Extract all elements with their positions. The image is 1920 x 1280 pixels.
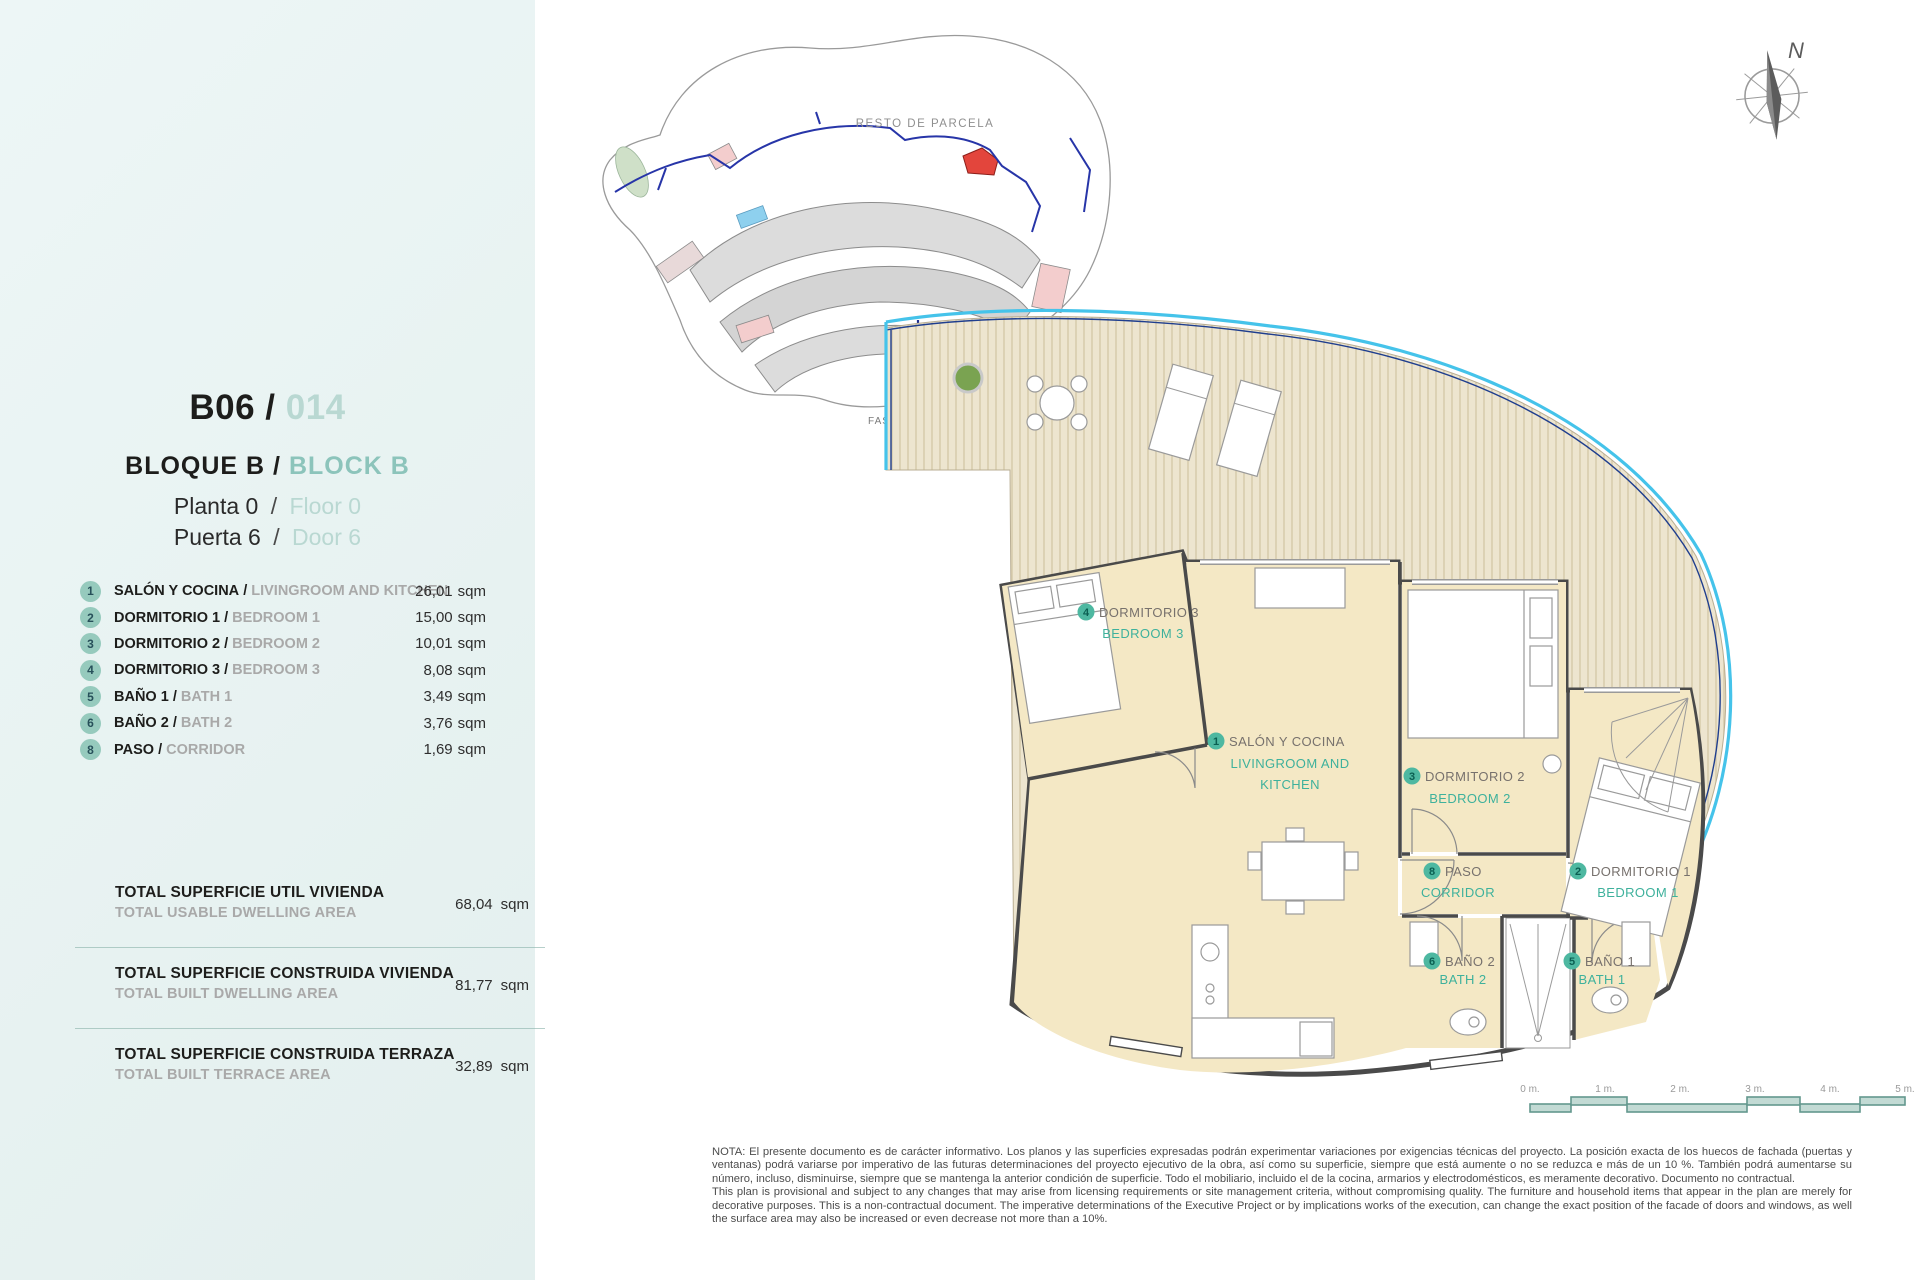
info-sidebar: B06 / 014 BLOQUE B / BLOCK B Planta 0 / …: [0, 0, 535, 1280]
room-area: 1,69sqm: [423, 741, 486, 758]
north-compass-icon: N: [1722, 28, 1832, 148]
block-line: BLOQUE B / BLOCK B: [0, 452, 535, 481]
divider: [75, 1028, 545, 1029]
unit-title: B06 / 014: [0, 388, 535, 428]
slash: /: [265, 493, 283, 519]
total-built-terrace-value: 32,89sqm: [455, 1058, 529, 1075]
plan-label-bath2-es: BAÑO 2: [1445, 954, 1495, 969]
svg-text:4: 4: [1083, 607, 1090, 619]
plan-label-bedroom1-es: DORMITORIO 1: [1591, 864, 1691, 879]
room-row-corridor: 8 PASO / CORRIDOR 1,69sqm: [80, 736, 488, 762]
door-es: Puerta 6: [174, 524, 261, 550]
apartment-floor-plan: 4 DORMITORIO 3 BEDROOM 3 1 SALÓN Y COCIN…: [800, 300, 1760, 1100]
room-list: 1 SALÓN Y COCINA / LIVINGROOM AND KITCHE…: [80, 578, 488, 763]
plan-label-bedroom2-en: BEDROOM 2: [1429, 791, 1511, 806]
planter: [954, 364, 982, 392]
room-row-bedroom1: 2 DORMITORIO 1 / BEDROOM 1 15,00sqm: [80, 604, 488, 630]
plan-label-corridor-es: PASO: [1445, 864, 1482, 879]
shower-drain: [1506, 918, 1570, 1048]
total-usable-area: TOTAL SUPERFICIE UTIL VIVIENDA TOTAL USA…: [75, 884, 545, 921]
plan-label-bath1-en: BATH 1: [1579, 972, 1626, 987]
room-number-badge: 4: [80, 660, 101, 681]
room-number-badge: 8: [80, 739, 101, 760]
room-area: 26,01sqm: [415, 583, 486, 600]
slash: /: [267, 524, 285, 550]
scale-tick-3: 3 m.: [1745, 1084, 1764, 1095]
north-label: N: [1788, 38, 1804, 63]
room-number-badge: 5: [80, 686, 101, 707]
scale-tick-1: 1 m.: [1595, 1084, 1614, 1095]
divider: [75, 947, 545, 948]
legal-note-es: NOTA: El presente documento es de caráct…: [712, 1146, 1852, 1186]
floorplan-sheet: { "misc": {"slash": "/"}, "sidebar": { "…: [0, 0, 1920, 1280]
plan-label-bedroom3-en: BEDROOM 3: [1102, 626, 1184, 641]
svg-text:3: 3: [1409, 771, 1415, 783]
plan-label-bedroom2-es: DORMITORIO 2: [1425, 769, 1525, 784]
room-number-badge: 2: [80, 607, 101, 628]
room-row-bedroom3: 4 DORMITORIO 3 / BEDROOM 3 8,08sqm: [80, 657, 488, 683]
plan-label-bath1-es: BAÑO 1: [1585, 954, 1635, 969]
total-built-dwelling: TOTAL SUPERFICIE CONSTRUIDA VIVIENDA TOT…: [75, 965, 545, 1002]
svg-text:8: 8: [1429, 866, 1435, 878]
plan-label-living-es: SALÓN Y COCINA: [1229, 734, 1345, 749]
room-area: 8,08sqm: [423, 662, 486, 679]
room-number-badge: 3: [80, 633, 101, 654]
total-built-dwelling-value: 81,77sqm: [455, 977, 529, 994]
room-row-bath1: 5 BAÑO 1 / BATH 1 3,49sqm: [80, 684, 488, 710]
scale-bar: 0 m. 1 m. 2 m. 3 m. 4 m. 5 m.: [1520, 1082, 1920, 1127]
door-line: Puerta 6 / Door 6: [0, 524, 535, 551]
room-row-living: 1 SALÓN Y COCINA / LIVINGROOM AND KITCHE…: [80, 578, 488, 604]
floor-line: Planta 0 / Floor 0: [0, 493, 535, 520]
block-en: BLOCK B: [289, 452, 410, 480]
room-area: 3,49sqm: [423, 688, 486, 705]
room-area: 10,01sqm: [415, 635, 486, 652]
slash: /: [273, 452, 281, 480]
legal-note: NOTA: El presente documento es de caráct…: [712, 1146, 1852, 1226]
floor-en: Floor 0: [289, 493, 361, 519]
plan-label-bath2-en: BATH 2: [1440, 972, 1487, 987]
slash: /: [265, 388, 275, 427]
room-row-bath2: 6 BAÑO 2 / BATH 2 3,76sqm: [80, 710, 488, 736]
room-number-badge: 6: [80, 713, 101, 734]
legal-note-en: This plan is provisional and subject to …: [712, 1186, 1852, 1226]
scale-tick-0: 0 m.: [1520, 1084, 1539, 1095]
plan-label-living-en1: LIVINGROOM AND: [1230, 756, 1349, 771]
room-area: 15,00sqm: [415, 609, 486, 626]
room-number-badge: 1: [80, 581, 101, 602]
door-en: Door 6: [292, 524, 361, 550]
plan-label-bedroom3-es: DORMITORIO 3: [1099, 605, 1199, 620]
parcel-label: RESTO DE PARCELA: [856, 118, 995, 130]
block-es: BLOQUE B: [125, 452, 265, 480]
unit-number: 014: [286, 388, 346, 427]
total-built-terrace: TOTAL SUPERFICIE CONSTRUIDA TERRAZA TOTA…: [75, 1046, 545, 1083]
plan-label-bedroom1-en: BEDROOM 1: [1597, 885, 1679, 900]
svg-text:2: 2: [1575, 866, 1581, 878]
svg-text:6: 6: [1429, 956, 1435, 968]
room-name-es: SALÓN Y COCINA: [114, 583, 239, 599]
scale-tick-5: 5 m.: [1895, 1084, 1914, 1095]
living-sideboard: [1255, 568, 1345, 608]
svg-text:5: 5: [1569, 956, 1575, 968]
room-area: 3,76sqm: [423, 715, 486, 732]
unit-code: B06: [189, 388, 255, 427]
plan-label-corridor-en: CORRIDOR: [1421, 885, 1495, 900]
total-usable-value: 68,04sqm: [455, 896, 529, 913]
scale-tick-2: 2 m.: [1670, 1084, 1689, 1095]
scale-tick-4: 4 m.: [1820, 1084, 1839, 1095]
plan-label-living-en2: KITCHEN: [1260, 777, 1320, 792]
room-row-bedroom2: 3 DORMITORIO 2 / BEDROOM 2 10,01sqm: [80, 631, 488, 657]
svg-text:1: 1: [1213, 736, 1219, 748]
floor-es: Planta 0: [174, 493, 258, 519]
